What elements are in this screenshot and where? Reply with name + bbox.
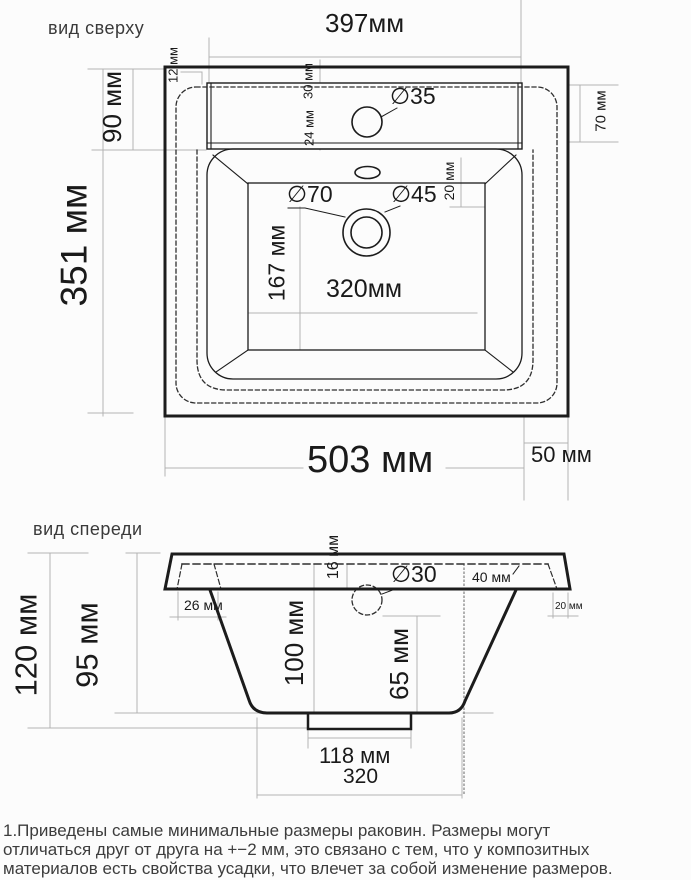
diameter-label-drain-front: ∅30 bbox=[391, 563, 437, 586]
dim-label-edge-offset: 12 мм bbox=[167, 47, 180, 83]
dim-label-right-offset: 50 мм bbox=[531, 444, 592, 466]
footer-note-line: отличаться друг от друга на +−2 мм, это … bbox=[3, 840, 691, 859]
dim-label-right-edge-overhang: 20 мм bbox=[555, 602, 583, 612]
footer-note-line: 1.Приведены самые минимальные размеры ра… bbox=[3, 821, 691, 840]
footer-note-line: материалов есть свойства усадки, что вле… bbox=[3, 859, 691, 878]
dim-label-total-width: 503 мм bbox=[307, 441, 433, 479]
dim-label-rim-thickness: 16 мм bbox=[326, 535, 342, 579]
dim-label-foot-width: 118 мм bbox=[319, 745, 390, 767]
front-view-title: вид спереди bbox=[33, 520, 143, 538]
faucet-deck bbox=[207, 83, 522, 149]
diameter-label-faucet-hole: ∅35 bbox=[390, 85, 436, 108]
dim-label-drain-offset: 40 мм bbox=[472, 570, 511, 584]
dim-label-hole-front-offset: 30 мм bbox=[302, 63, 315, 99]
diameter-label-drain-outer: ∅70 bbox=[287, 183, 333, 206]
dim-label-body-height: 95 мм bbox=[72, 602, 103, 688]
dim-label-basin-width: 320мм bbox=[326, 277, 402, 302]
dim-label-total-height: 120 мм bbox=[11, 594, 42, 697]
dim-label-deck-depth: 90 мм bbox=[99, 71, 125, 143]
dim-label-drain-depth: 65 мм bbox=[386, 628, 412, 700]
dim-label-deck-width: 397мм bbox=[325, 10, 404, 36]
dim-label-basin-depth: 167 мм bbox=[266, 225, 289, 301]
drain-foot bbox=[308, 713, 411, 729]
bowl-profile bbox=[210, 590, 516, 713]
dim-label-total-depth: 351 мм bbox=[56, 184, 93, 307]
dim-label-right-rim: 70 мм bbox=[594, 90, 609, 131]
overflow-hole bbox=[355, 167, 380, 179]
dim-label-bowl-depth: 100 мм bbox=[281, 600, 307, 686]
drawing-sheet: вид сверху 397мм 12 мм 90 мм 351 мм 30 м… bbox=[0, 0, 691, 880]
footer-note: 1.Приведены самые минимальные размеры ра… bbox=[3, 821, 691, 878]
top-view-title: вид сверху bbox=[48, 19, 144, 37]
dim-label-left-inset: 26 мм bbox=[184, 598, 223, 612]
dim-label-hole-back-offset: 24 мм bbox=[303, 110, 316, 146]
dim-label-basin-right-gap: 20 мм bbox=[442, 162, 456, 201]
drain-hole bbox=[343, 209, 390, 256]
dim-label-bottom-width: 320 bbox=[343, 766, 378, 787]
diameter-label-drain-inner: ∅45 bbox=[391, 183, 437, 206]
